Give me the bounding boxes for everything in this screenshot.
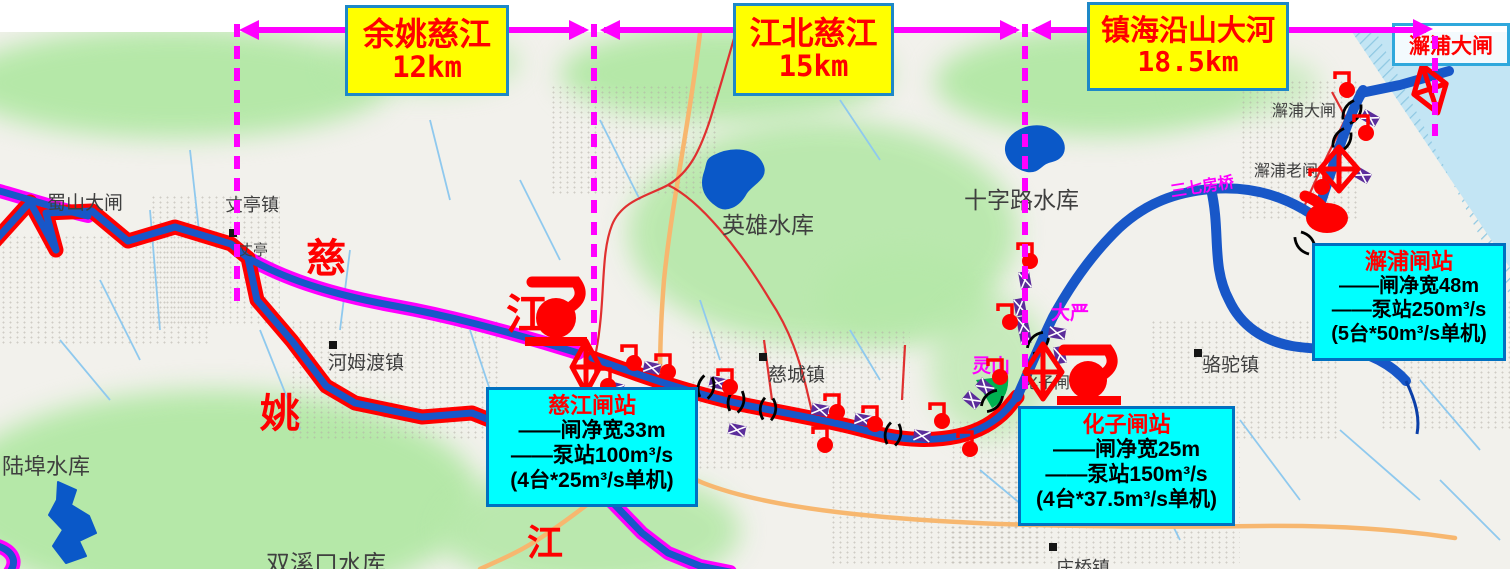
- station-units: (4台*25m³/s单机): [491, 469, 693, 494]
- station-title: 慈江闸站: [491, 393, 693, 419]
- station-pump: ——泵站150m³/s: [1023, 463, 1230, 488]
- segment-box-jiangbei-cijiang: 江北慈江 15km: [733, 3, 894, 96]
- station-pump: ——泵站250m³/s: [1317, 299, 1501, 323]
- segment-length: 15km: [779, 51, 849, 83]
- station-gate-width: ——闸净宽48m: [1317, 275, 1501, 299]
- segment-name: 江北慈江: [749, 16, 877, 52]
- cijiang-dazha-gate: [572, 341, 600, 393]
- bridge-symbols: [696, 99, 1364, 447]
- station-gate-width: ——闸净宽33m: [491, 419, 693, 444]
- coast-gate-label: 澥浦大闸: [1409, 30, 1493, 60]
- xiepu-station-symbol: [1305, 196, 1348, 233]
- xiepu-dazha-labelbox: 澥浦大闸: [1392, 23, 1510, 66]
- station-units: (5台*50m³/s单机): [1317, 323, 1501, 347]
- river-scheme-map: 蜀山大闸 丈亭镇 丈亭 河姆渡镇 英雄水库 慈城镇 十字路水库 骆驼镇 澥浦大闸…: [0, 0, 1510, 569]
- segment-length: 12km: [392, 52, 462, 84]
- cijiang-station-symbol: [525, 282, 587, 346]
- segment-box-yuyao-cijiang: 余姚慈江 12km: [345, 5, 509, 96]
- station-title: 澥浦闸站: [1317, 249, 1501, 275]
- segment-name: 镇海沿山大河: [1101, 15, 1275, 47]
- cijiang-station-infobox: 慈江闸站 ——闸净宽33m ——泵站100m³/s (4台*25m³/s单机): [486, 387, 698, 507]
- station-title: 化子闸站: [1023, 412, 1230, 438]
- xiepu-dazha-gate: [1406, 60, 1454, 118]
- station-pump: ——泵站100m³/s: [491, 444, 693, 469]
- segment-box-zhenhai-yanshan: 镇海沿山大河 18.5km: [1087, 2, 1289, 91]
- xiepu-station-infobox: 澥浦闸站 ——闸净宽48m ——泵站250m³/s (5台*50m³/s单机): [1312, 243, 1506, 361]
- huazi-station-infobox: 化子闸站 ——闸净宽25m ——泵站150m³/s (4台*37.5m³/s单机…: [1018, 406, 1235, 526]
- station-gate-width: ——闸净宽25m: [1023, 438, 1230, 463]
- huazi-station-symbol: [1057, 350, 1121, 405]
- segment-name: 余姚慈江: [363, 17, 491, 53]
- station-units: (4台*37.5m³/s单机): [1023, 488, 1230, 513]
- segment-length: 18.5km: [1137, 47, 1238, 78]
